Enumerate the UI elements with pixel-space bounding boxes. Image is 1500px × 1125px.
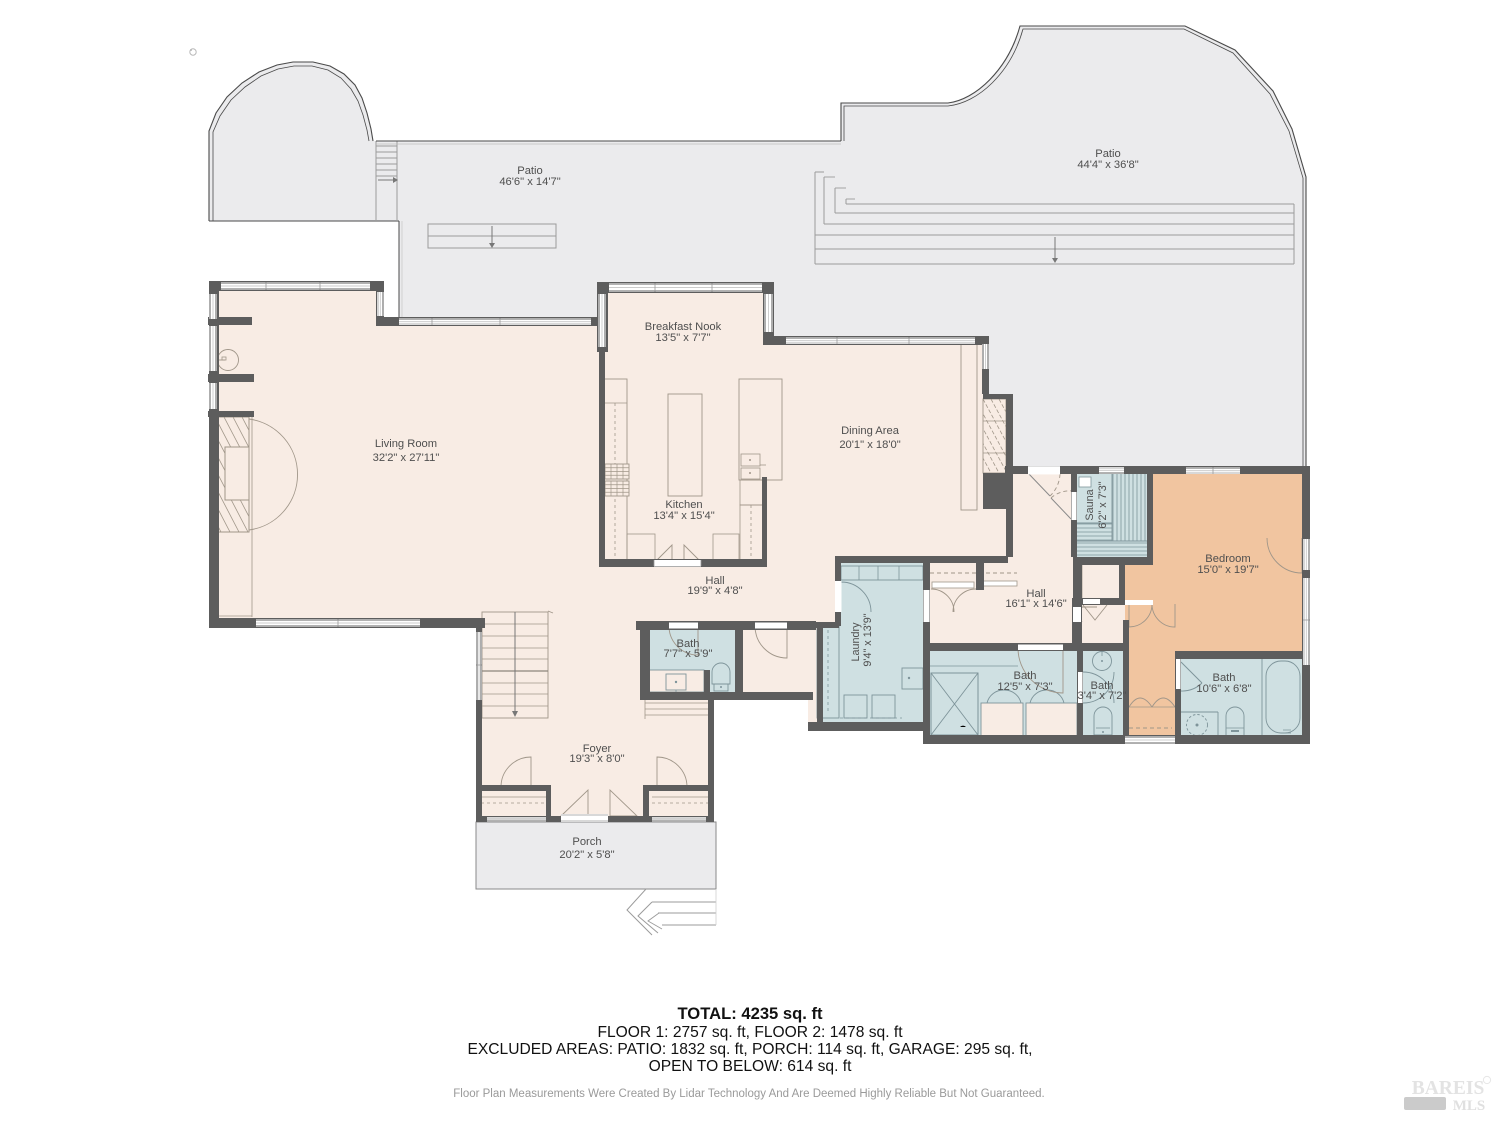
svg-text:44'4" x 36'8": 44'4" x 36'8" bbox=[1077, 159, 1138, 171]
svg-text:EXCLUDED AREAS: PATIO: 1832 sq: EXCLUDED AREAS: PATIO: 1832 sq. ft, PORC… bbox=[467, 1041, 1032, 1058]
svg-text:TOTAL: 4235 sq. ft: TOTAL: 4235 sq. ft bbox=[677, 1004, 823, 1023]
svg-text:3'4" x 7'2": 3'4" x 7'2" bbox=[1078, 690, 1127, 702]
svg-text:Living Room: Living Room bbox=[375, 438, 437, 450]
svg-text:Floor Plan Measurements Were C: Floor Plan Measurements Were Created By … bbox=[453, 1088, 1045, 1100]
svg-text:13'4" x 15'4": 13'4" x 15'4" bbox=[653, 510, 714, 522]
svg-text:FLOOR 1: 2757 sq. ft, FLOOR 2:: FLOOR 1: 2757 sq. ft, FLOOR 2: 1478 sq. … bbox=[597, 1024, 903, 1041]
svg-text:Laundry: Laundry bbox=[850, 622, 862, 662]
svg-text:Sauna: Sauna bbox=[1084, 489, 1096, 520]
svg-text:13'5" x 7'7": 13'5" x 7'7" bbox=[655, 332, 710, 344]
svg-text:OPEN TO BELOW: 614 sq. ft: OPEN TO BELOW: 614 sq. ft bbox=[649, 1058, 852, 1075]
svg-text:10'6" x 6'8": 10'6" x 6'8" bbox=[1196, 683, 1251, 695]
svg-text:20'1" x 18'0": 20'1" x 18'0" bbox=[839, 439, 900, 451]
svg-text:9'4" x 13'9": 9'4" x 13'9" bbox=[862, 613, 874, 666]
svg-text:46'6" x 14'7": 46'6" x 14'7" bbox=[499, 176, 560, 188]
svg-text:19'9" x 4'8": 19'9" x 4'8" bbox=[687, 585, 742, 597]
svg-text:Dining Area: Dining Area bbox=[841, 425, 900, 437]
svg-text:20'2" x 5'8": 20'2" x 5'8" bbox=[559, 849, 614, 861]
svg-text:Porch: Porch bbox=[572, 836, 601, 848]
svg-text:15'0" x 19'7": 15'0" x 19'7" bbox=[1197, 564, 1258, 576]
svg-text:12'5" x 7'3": 12'5" x 7'3" bbox=[997, 681, 1052, 693]
svg-text:6'2" x 7'3": 6'2" x 7'3" bbox=[1097, 481, 1109, 528]
svg-text:19'3" x 8'0": 19'3" x 8'0" bbox=[569, 753, 624, 765]
svg-text:7'7" x 5'9": 7'7" x 5'9" bbox=[664, 648, 713, 660]
svg-text:32'2" x 27'11": 32'2" x 27'11" bbox=[373, 452, 440, 464]
svg-text:BAREIS: BAREIS bbox=[1412, 1078, 1485, 1099]
svg-text:MLS: MLS bbox=[1453, 1098, 1486, 1114]
svg-text:16'1" x 14'6": 16'1" x 14'6" bbox=[1005, 598, 1066, 610]
